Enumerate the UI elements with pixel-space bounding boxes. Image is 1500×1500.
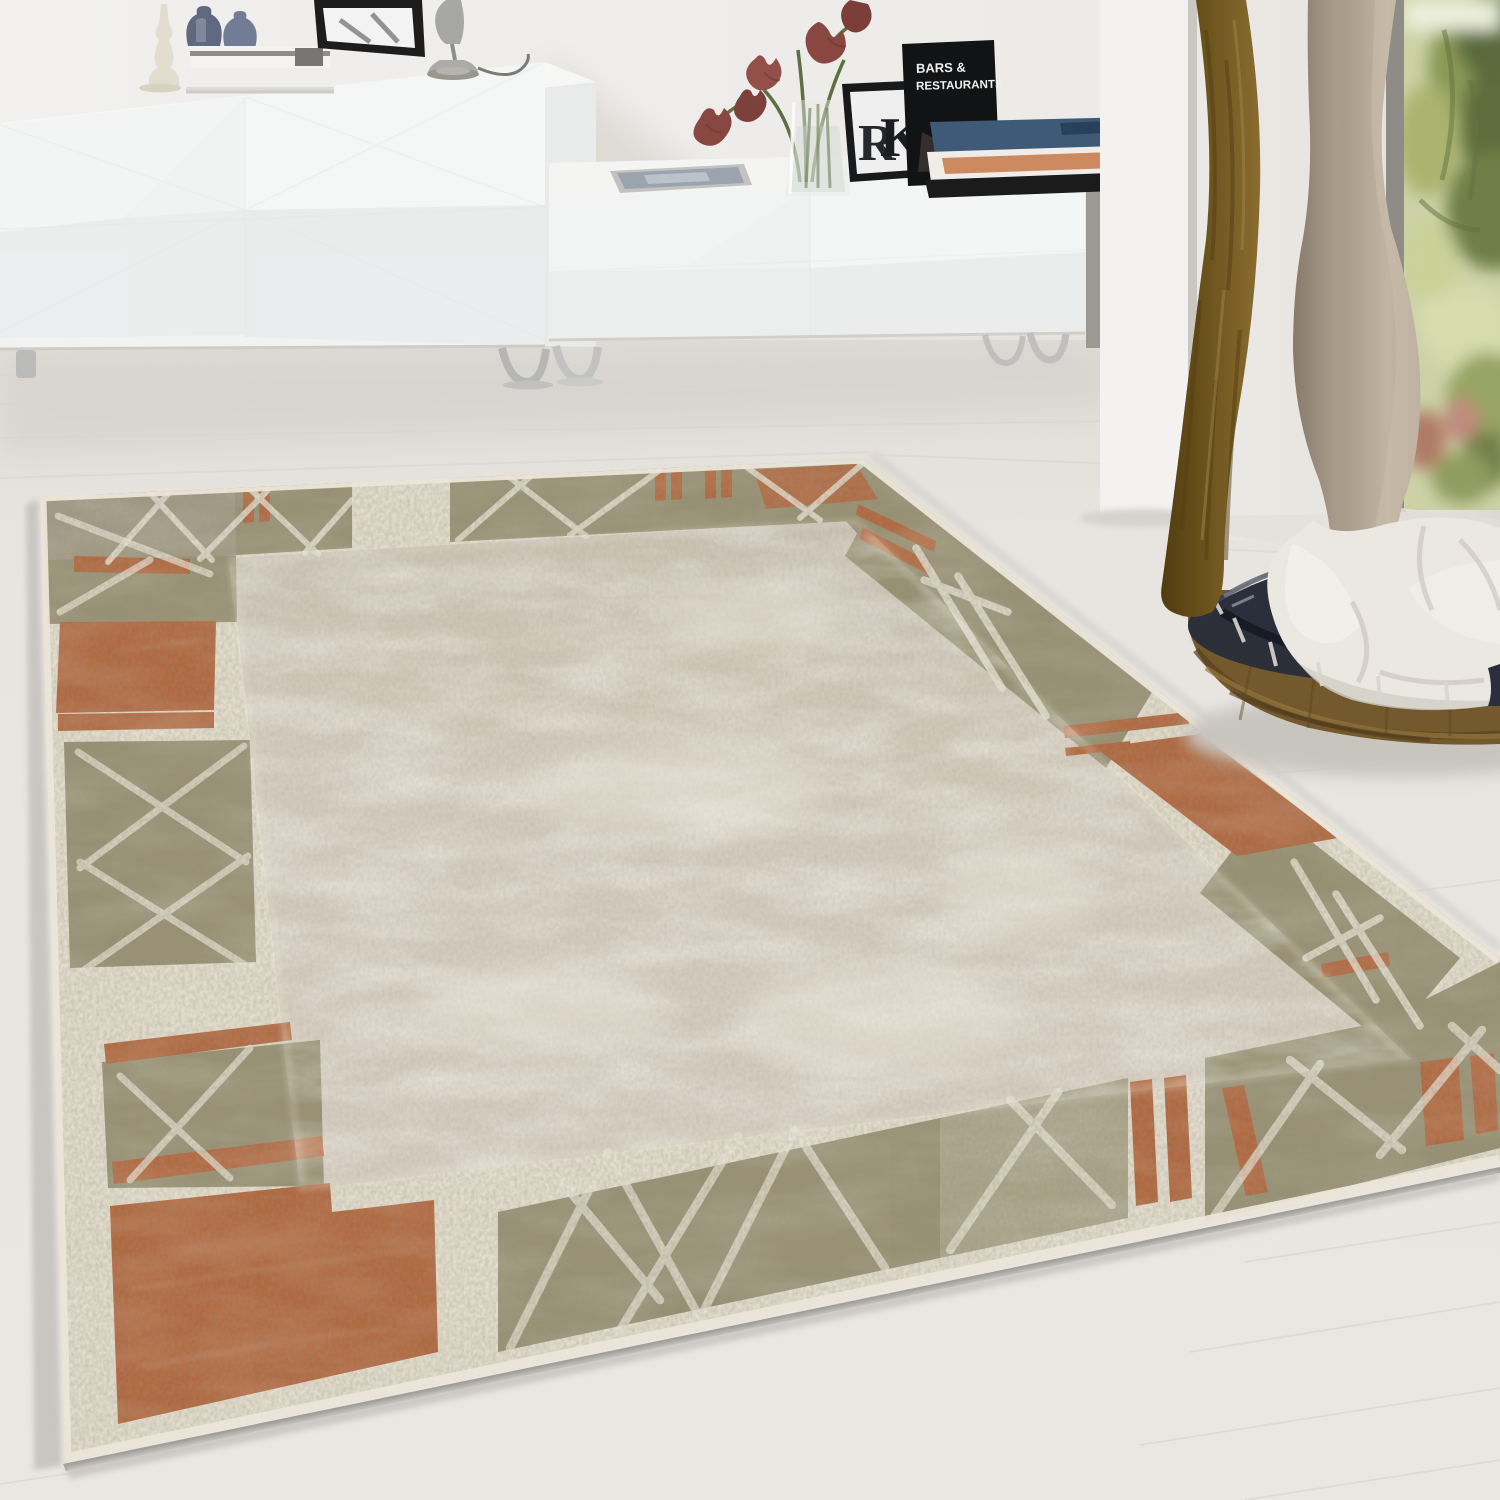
svg-text:BARS &: BARS &: [916, 60, 966, 76]
svg-text:RESTAURANTS: RESTAURANTS: [916, 78, 1003, 93]
